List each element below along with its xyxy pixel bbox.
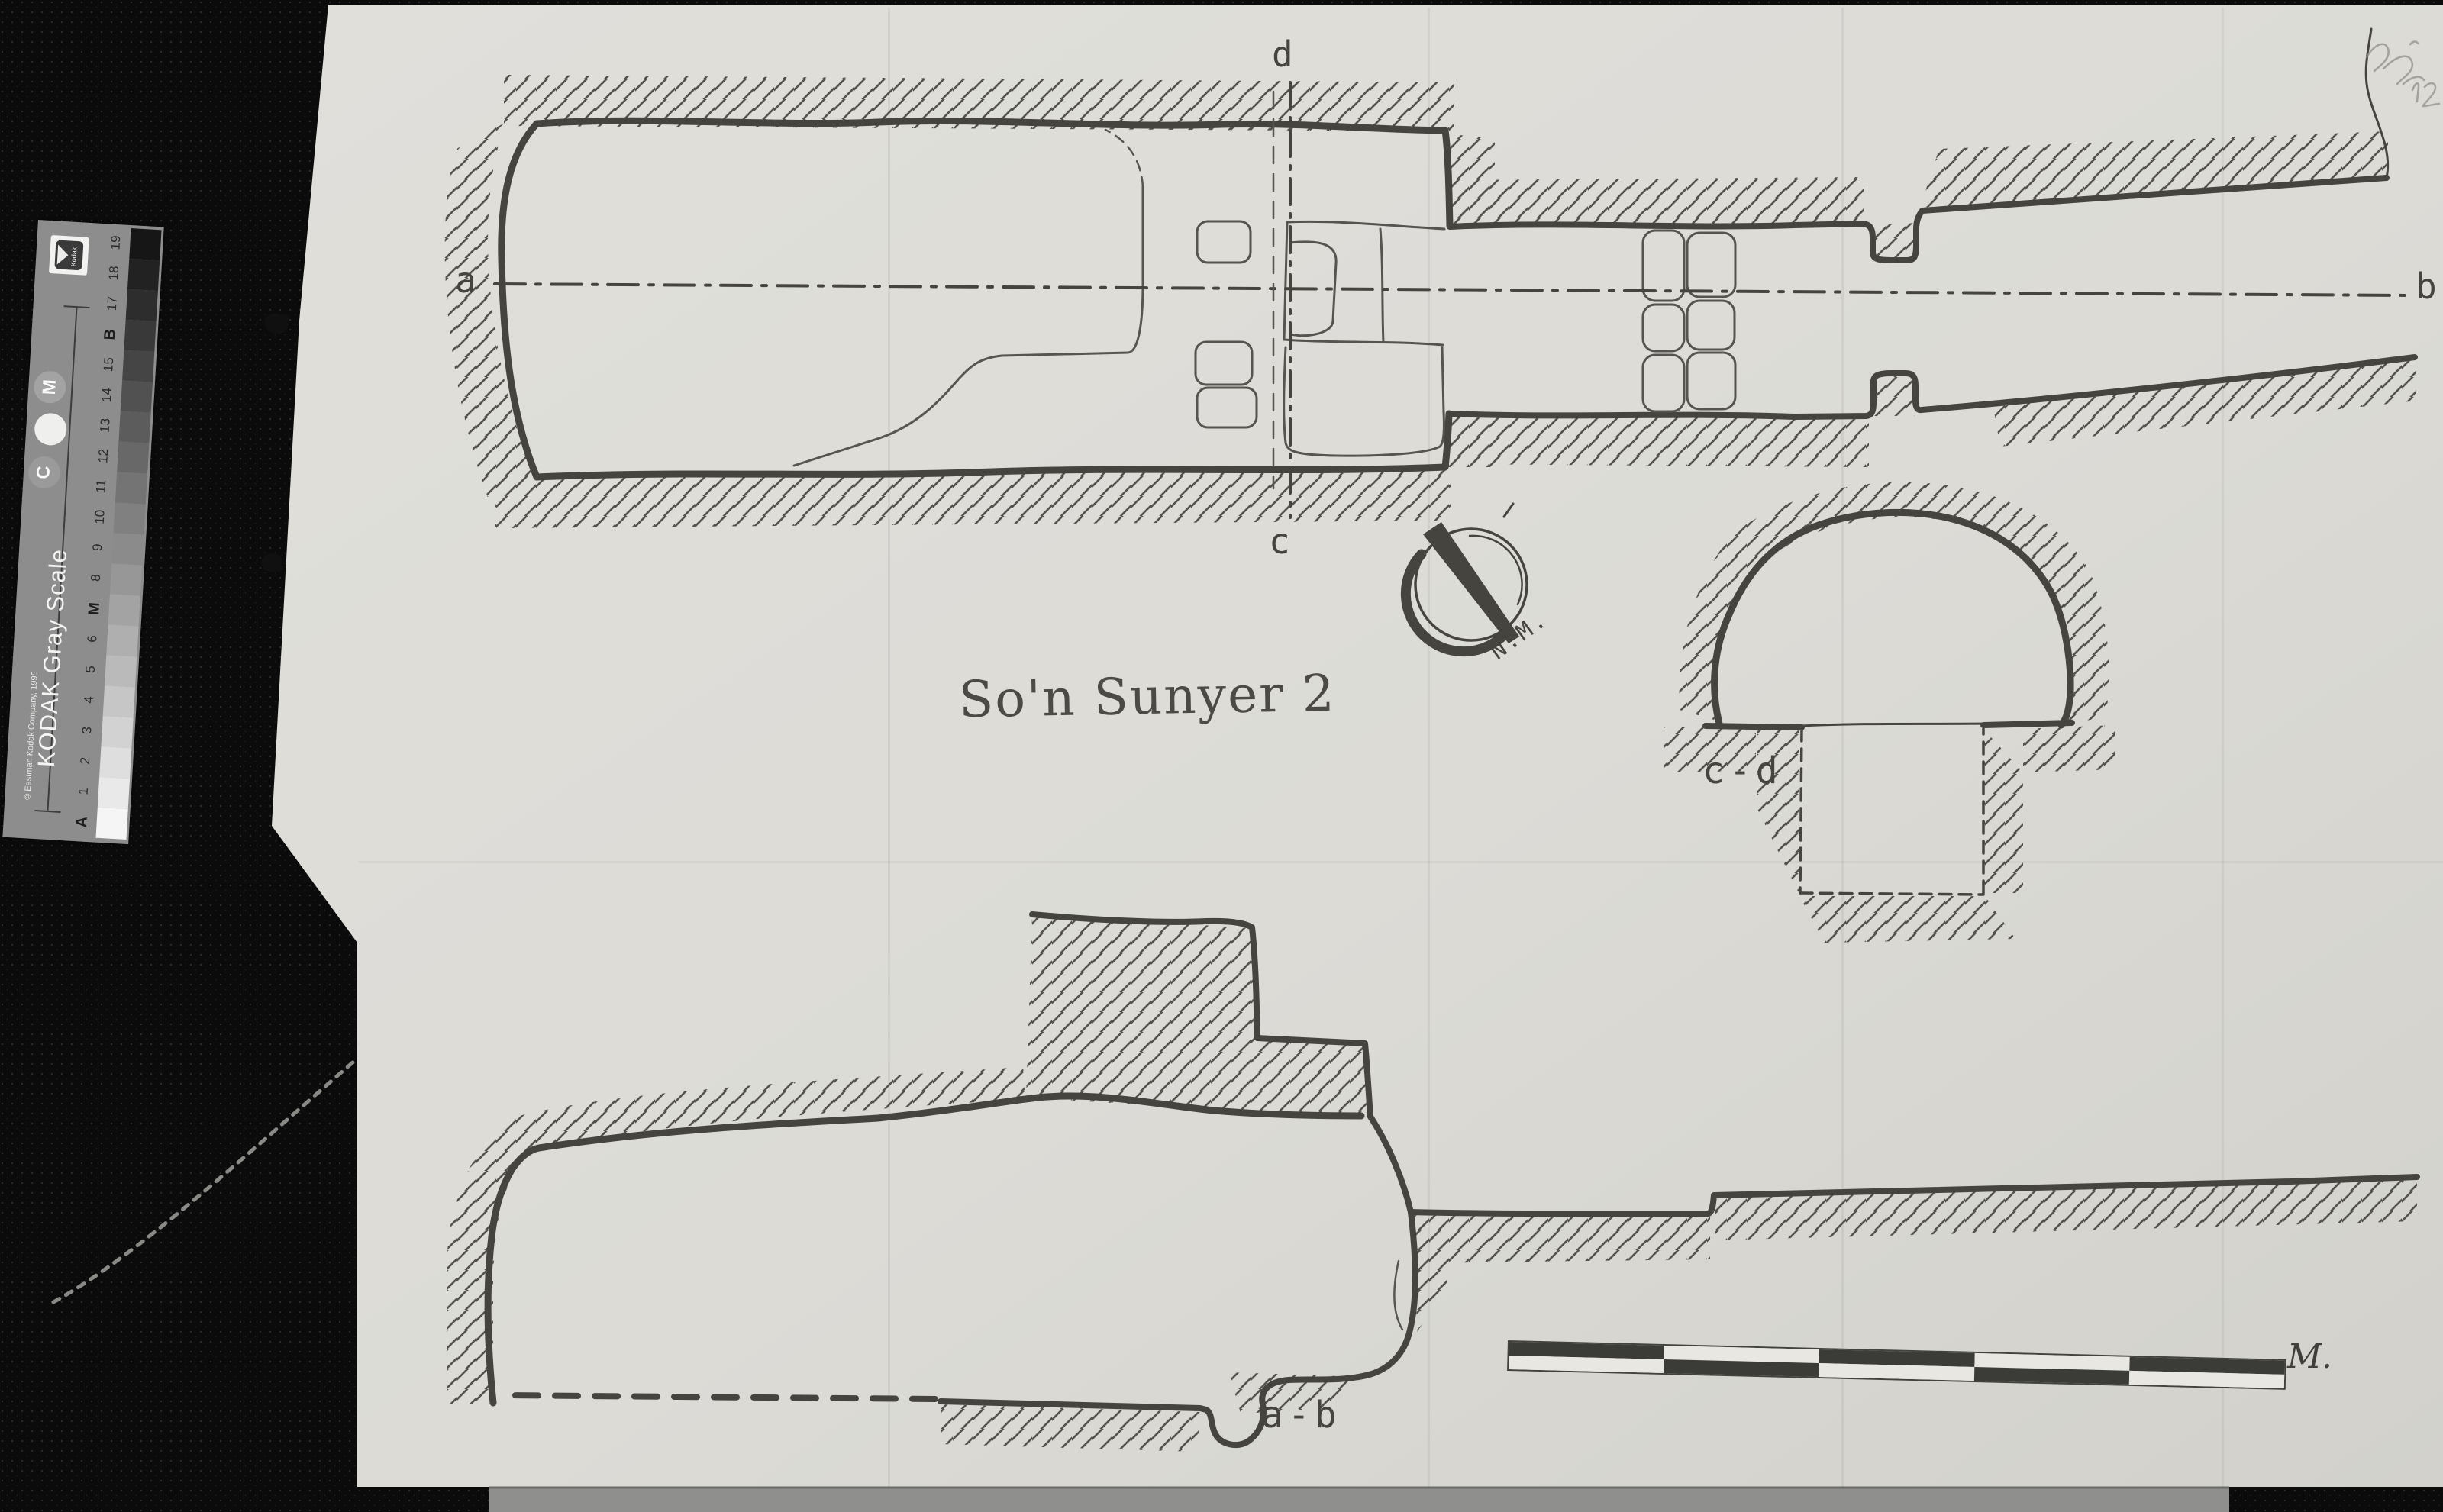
gray-scale-patch-A (96, 808, 128, 840)
gray-scale-patch-15 (122, 350, 154, 382)
paper-sheet (272, 5, 2443, 1487)
gray-scale-patch-10 (114, 502, 146, 534)
lower-sheet-edge (489, 1487, 2229, 1512)
drawing-title: So'n Sunyer 2 (958, 669, 1336, 726)
gray-scale-marker-12: 12 (89, 440, 117, 472)
gray-scale-marker-2: 2 (72, 745, 99, 777)
cross-section-label: c-d (1702, 753, 1783, 789)
gray-scale-patch-11 (115, 472, 147, 504)
scale-bar-segment (1973, 1367, 2129, 1385)
gray-scale-marker-10: 10 (86, 501, 114, 533)
kodak-arrow-icon (57, 245, 69, 266)
gray-scale-patch-5 (105, 655, 137, 687)
strip-circle-blank (34, 412, 67, 446)
scale-bar-segment (1509, 1356, 1664, 1373)
kodak-logo-box: Kodak (54, 240, 83, 270)
scale-bar-segment (2129, 1371, 2285, 1388)
gray-scale-marker-11: 11 (88, 470, 115, 502)
gray-scale-marker-17: 17 (98, 288, 126, 320)
scanned-archaeological-drawing: Kodak M C KODAK Gray Scale © Eastman Kod… (0, 0, 2443, 1512)
gray-scale-patch-14 (121, 381, 153, 413)
axis-label-a: a (455, 263, 476, 298)
gray-scale-marker-15: 15 (95, 349, 122, 381)
strip-circle-m: M (33, 370, 66, 404)
long-section-label: a-b (1261, 1397, 1341, 1433)
strip-rule-end (34, 810, 60, 813)
gray-scale-title: KODAK Gray Scale (31, 512, 73, 803)
gray-scale-patch-9 (111, 533, 144, 565)
gray-scale-marker-9: 9 (84, 531, 111, 563)
gray-scale-patch-13 (118, 411, 150, 443)
gray-scale-marker-3: 3 (73, 714, 101, 746)
gray-scale-marker-18: 18 (100, 257, 127, 289)
axis-label-b: b (2416, 269, 2437, 304)
drawing-canvas (0, 0, 2443, 1512)
gray-scale-marker-B: B (96, 318, 124, 350)
gray-scale-marker-1: 1 (70, 775, 98, 808)
gray-scale-patch-1 (98, 777, 130, 809)
gray-scale-marker-A: A (69, 806, 96, 838)
scale-bar-segment (1819, 1363, 1974, 1381)
gray-scale-marker-13: 13 (92, 410, 119, 442)
strip-circle-c-label: C (33, 466, 55, 480)
gray-scale-patch-12 (117, 442, 149, 474)
gray-scale-marker-M: M (81, 592, 108, 624)
gray-scale-marker-8: 8 (82, 562, 110, 594)
gray-scale-patch-3 (101, 716, 133, 748)
gray-scale-patch-B (124, 320, 156, 352)
gray-scale-marker-5: 5 (77, 653, 105, 685)
gray-scale-patch-19 (129, 228, 161, 260)
gray-scale-patch-M (108, 594, 140, 626)
gray-scale-patch-6 (106, 624, 138, 656)
gray-scale-patch-8 (110, 563, 142, 595)
scale-bar-unit-label: M. (2287, 1340, 2332, 1374)
gray-scale-marker-4: 4 (76, 684, 103, 716)
gray-scale-patch-17 (126, 289, 158, 321)
gray-scale-patch-4 (103, 685, 135, 717)
gray-scale-marker-19: 19 (102, 227, 129, 259)
gray-scale-patch-2 (99, 746, 131, 779)
axis-label-d: d (1272, 37, 1293, 72)
gray-scale-marker-14: 14 (93, 379, 121, 411)
kodak-logo-text: Kodak (69, 250, 78, 267)
strip-circle-c: C (27, 456, 61, 489)
axis-label-c: c (1269, 524, 1290, 559)
scale-bar-segment (1664, 1359, 1819, 1377)
kodak-logo: Kodak (49, 235, 89, 276)
gray-scale-patch-18 (127, 259, 160, 291)
strip-circle-m-label: M (39, 379, 61, 395)
gray-scale-marker-6: 6 (79, 623, 106, 655)
